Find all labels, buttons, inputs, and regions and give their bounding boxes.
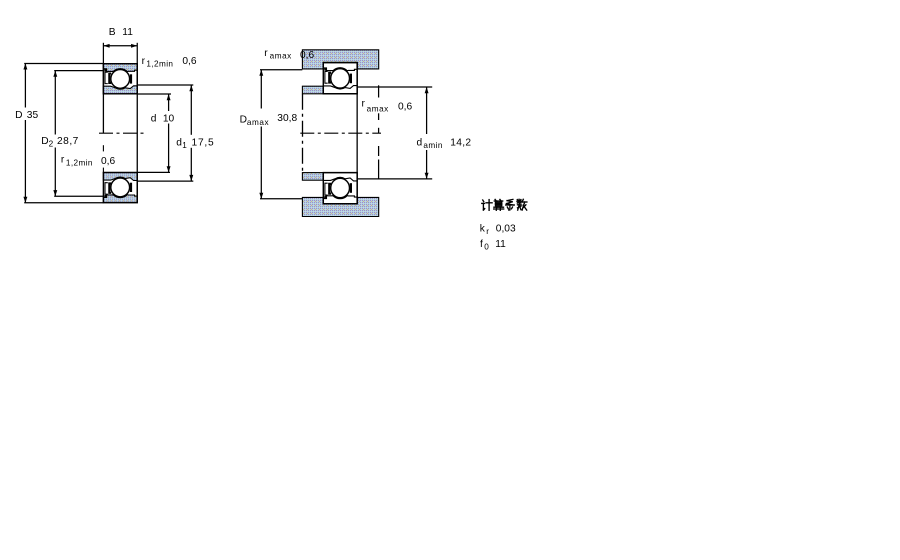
svg-text:r: r: [486, 227, 489, 236]
svg-text:d: d: [417, 138, 423, 149]
svg-text:0,6: 0,6: [398, 102, 412, 113]
svg-text:28,7: 28,7: [57, 136, 79, 147]
svg-text:d: d: [151, 113, 157, 124]
svg-text:0,6: 0,6: [101, 156, 115, 167]
svg-text:amax: amax: [270, 52, 292, 61]
svg-text:35: 35: [27, 110, 39, 121]
svg-text:11: 11: [495, 239, 506, 250]
svg-text:r: r: [264, 48, 268, 59]
svg-text:1,2min: 1,2min: [66, 158, 93, 167]
svg-text:B: B: [109, 27, 116, 38]
svg-text:14,2: 14,2: [450, 138, 471, 149]
svg-text:30,8: 30,8: [277, 113, 297, 124]
svg-text:11: 11: [122, 27, 133, 38]
svg-text:D: D: [240, 115, 247, 126]
svg-text:r: r: [142, 56, 146, 67]
svg-text:0: 0: [484, 242, 489, 251]
svg-text:1,2min: 1,2min: [146, 60, 173, 69]
svg-text:amin: amin: [423, 141, 443, 150]
svg-text:10: 10: [163, 113, 175, 124]
svg-text:D: D: [41, 136, 48, 147]
svg-text:D: D: [15, 110, 22, 121]
svg-text:0,6: 0,6: [300, 50, 314, 61]
svg-text:0,6: 0,6: [182, 56, 196, 67]
svg-text:amax: amax: [367, 104, 389, 113]
svg-text:f: f: [480, 239, 483, 250]
svg-text:2: 2: [49, 139, 54, 148]
svg-text:0,03: 0,03: [496, 224, 516, 235]
svg-text:17,5: 17,5: [192, 138, 215, 149]
svg-text:amax: amax: [247, 118, 269, 127]
svg-text:r: r: [61, 155, 65, 166]
svg-text:r: r: [362, 98, 366, 109]
svg-text:1: 1: [182, 141, 187, 150]
